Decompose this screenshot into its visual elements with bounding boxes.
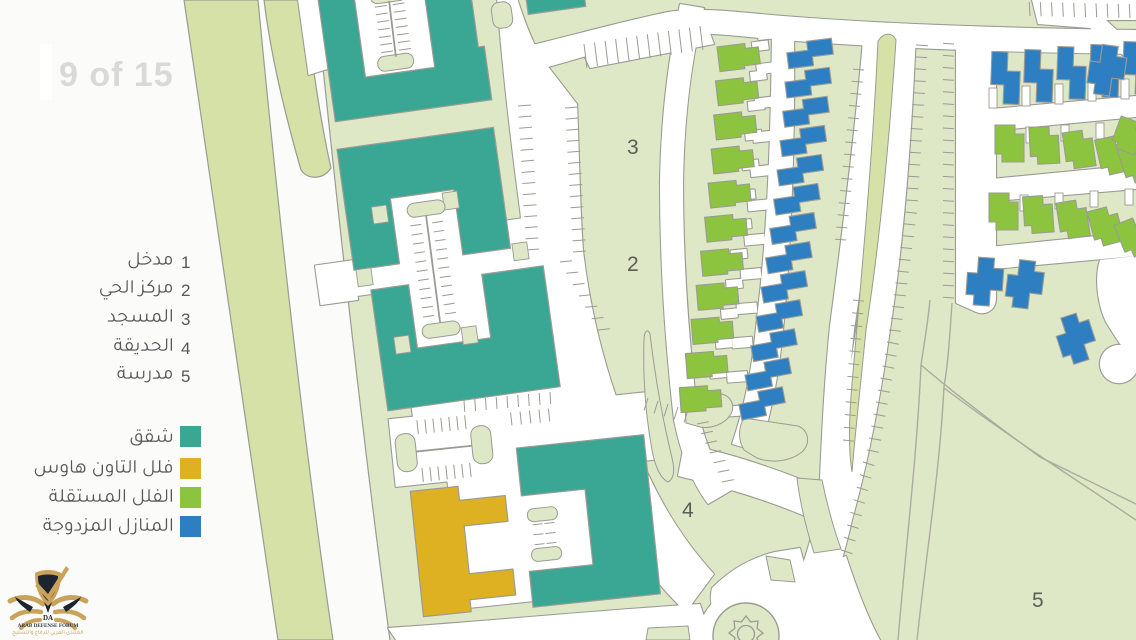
svg-text:ARAB DEFENSE FORUM: ARAB DEFENSE FORUM (18, 623, 79, 629)
svg-text:3: 3 (627, 136, 639, 159)
svg-text:2: 2 (181, 281, 190, 300)
svg-text:DA: DA (43, 614, 53, 622)
svg-text:5: 5 (1032, 589, 1044, 612)
svg-text:4: 4 (682, 499, 694, 522)
svg-text:9 of 15: 9 of 15 (59, 56, 174, 94)
svg-text:4: 4 (181, 339, 190, 358)
svg-text:5: 5 (181, 367, 190, 386)
svg-text:1: 1 (181, 253, 190, 272)
svg-text:2: 2 (627, 253, 639, 276)
svg-text:3: 3 (181, 310, 190, 329)
